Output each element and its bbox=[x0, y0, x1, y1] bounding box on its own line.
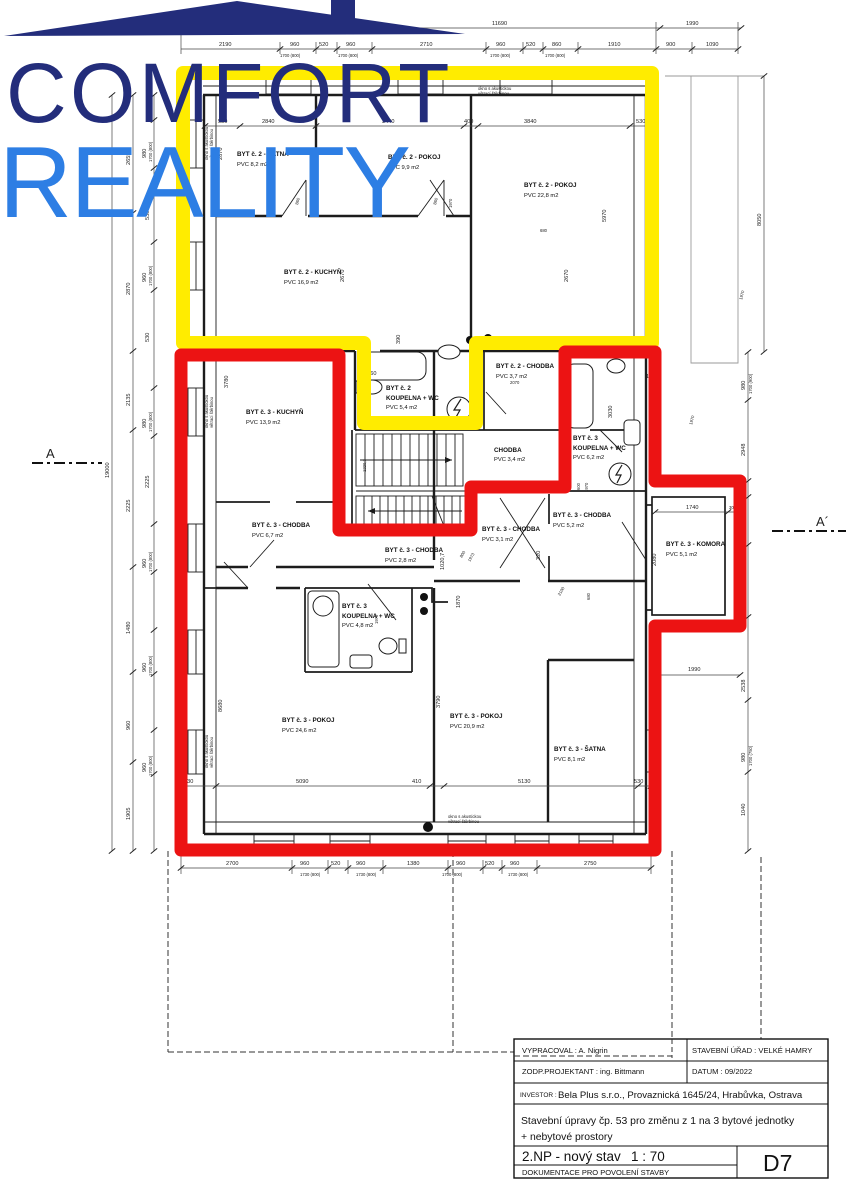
svg-text:PVC 13,9 m2: PVC 13,9 m2 bbox=[246, 420, 280, 426]
svg-text:1700 (900): 1700 (900) bbox=[748, 373, 753, 394]
svg-text:1220,7: 1220,7 bbox=[362, 459, 367, 472]
svg-text:1700 (800): 1700 (800) bbox=[148, 655, 153, 676]
svg-text:DOKUMENTACE PRO POVOLENÍ STAVB: DOKUMENTACE PRO POVOLENÍ STAVBY bbox=[522, 1168, 669, 1177]
svg-text:960: 960 bbox=[510, 861, 519, 867]
svg-text:BYT č. 2 - CHODBA: BYT č. 2 - CHODBA bbox=[496, 363, 555, 370]
svg-text:530: 530 bbox=[636, 119, 645, 125]
svg-text:PVC 5,2 m2: PVC 5,2 m2 bbox=[553, 523, 584, 529]
svg-text:11690: 11690 bbox=[492, 21, 507, 27]
svg-text:1870: 1870 bbox=[456, 596, 462, 608]
svg-text:1990: 1990 bbox=[688, 667, 700, 673]
svg-text:520: 520 bbox=[526, 42, 535, 48]
svg-text:BYT č. 3 - CHODBA: BYT č. 3 - CHODBA bbox=[553, 512, 612, 519]
svg-text:BYT č. 3 - POKOJ: BYT č. 3 - POKOJ bbox=[282, 717, 335, 724]
svg-text:1040: 1040 bbox=[741, 804, 747, 816]
svg-text:2948: 2948 bbox=[741, 444, 747, 456]
svg-text:900: 900 bbox=[666, 42, 675, 48]
svg-text:8050: 8050 bbox=[757, 214, 763, 226]
svg-text:INVESTOR :: INVESTOR : bbox=[520, 1092, 557, 1099]
svg-text:1700 (800): 1700 (800) bbox=[148, 551, 153, 572]
svg-text:2135: 2135 bbox=[126, 394, 132, 406]
svg-text:1730 (800): 1730 (800) bbox=[356, 872, 377, 877]
svg-text:D7: D7 bbox=[763, 1150, 792, 1176]
svg-text:1700 (800): 1700 (800) bbox=[545, 53, 566, 58]
svg-text:BYT č. 3: BYT č. 3 bbox=[342, 603, 367, 610]
svg-text:600: 600 bbox=[576, 482, 581, 490]
svg-text:3840: 3840 bbox=[524, 119, 536, 125]
svg-text:1020,7: 1020,7 bbox=[440, 553, 446, 570]
svg-text:2670: 2670 bbox=[340, 270, 346, 282]
svg-text:980: 980 bbox=[741, 381, 747, 390]
svg-text:Bela Plus s.r.o., Provaznická: Bela Plus s.r.o., Provaznická 1645/24, H… bbox=[558, 1090, 803, 1101]
svg-text:960: 960 bbox=[356, 861, 365, 867]
svg-text:2750: 2750 bbox=[584, 861, 596, 867]
svg-text:BYT č. 3 - POKOJ: BYT č. 3 - POKOJ bbox=[450, 713, 503, 720]
svg-text:větrací štěrbinou: větrací štěrbinou bbox=[209, 396, 214, 428]
svg-text:PVC 3,1 m2: PVC 3,1 m2 bbox=[482, 537, 513, 543]
svg-text:BYT č. 3 - KOMORA: BYT č. 3 - KOMORA bbox=[666, 541, 726, 548]
svg-text:větrací štěrbinou: větrací štěrbinou bbox=[478, 91, 510, 96]
svg-text:A´: A´ bbox=[816, 514, 829, 529]
svg-text:PVC 6,2 m2: PVC 6,2 m2 bbox=[573, 455, 604, 461]
svg-text:2870: 2870 bbox=[126, 283, 132, 295]
svg-text:PVC 8,1 m2: PVC 8,1 m2 bbox=[554, 757, 585, 763]
svg-text:3030: 3030 bbox=[608, 406, 614, 418]
svg-text:PVC 22,8 m2: PVC 22,8 m2 bbox=[524, 193, 558, 199]
svg-text:1905: 1905 bbox=[126, 808, 132, 820]
svg-text:860: 860 bbox=[552, 42, 561, 48]
svg-text:530: 530 bbox=[634, 779, 643, 785]
svg-text:PVC 24,6 m2: PVC 24,6 m2 bbox=[282, 728, 316, 734]
svg-text:STAVEBNÍ ÚŘAD : VELKÉ HAMRY: STAVEBNÍ ÚŘAD : VELKÉ HAMRY bbox=[692, 1046, 812, 1055]
svg-text:VYPRACOVAL : A. Nigrin: VYPRACOVAL : A. Nigrin bbox=[522, 1046, 608, 1055]
svg-text:BYT č. 2 - POKOJ: BYT č. 2 - POKOJ bbox=[524, 182, 577, 189]
svg-text:390: 390 bbox=[396, 335, 402, 344]
svg-text:2700: 2700 bbox=[226, 861, 238, 867]
svg-text:PVC 2,8 m2: PVC 2,8 m2 bbox=[385, 558, 416, 564]
svg-text:PVC 5,1 m2: PVC 5,1 m2 bbox=[666, 552, 697, 558]
svg-text:680: 680 bbox=[540, 228, 548, 233]
svg-text:1700 (800): 1700 (800) bbox=[148, 755, 153, 776]
svg-text:+ nebytové prostory: + nebytové prostory bbox=[521, 1132, 613, 1143]
svg-text:1 : 70: 1 : 70 bbox=[631, 1149, 665, 1164]
svg-text:BYT č. 3 - KUCHYŇ: BYT č. 3 - KUCHYŇ bbox=[246, 407, 304, 416]
svg-text:320: 320 bbox=[536, 551, 542, 560]
svg-text:ZODP.PROJEKTANT : ing. Bittman: ZODP.PROJEKTANT : ing. Bittmann bbox=[522, 1067, 644, 1076]
svg-text:větrací štěrbinou: větrací štěrbinou bbox=[448, 819, 480, 824]
svg-text:520: 520 bbox=[331, 861, 340, 867]
svg-text:2225: 2225 bbox=[145, 476, 151, 488]
svg-text:1380: 1380 bbox=[407, 861, 419, 867]
svg-text:1990: 1990 bbox=[686, 21, 698, 27]
svg-text:8680: 8680 bbox=[218, 700, 224, 712]
svg-text:1480: 1480 bbox=[126, 622, 132, 634]
svg-text:1910: 1910 bbox=[608, 42, 620, 48]
svg-text:2080: 2080 bbox=[652, 554, 658, 566]
svg-text:1700 (800): 1700 (800) bbox=[442, 872, 463, 877]
svg-text:1740: 1740 bbox=[686, 505, 698, 511]
svg-text:530: 530 bbox=[145, 333, 151, 342]
svg-text:PVC 6,7 m2: PVC 6,7 m2 bbox=[252, 533, 283, 539]
svg-text:1700 (800): 1700 (800) bbox=[148, 265, 153, 286]
svg-text:A: A bbox=[46, 446, 55, 461]
svg-text:3780: 3780 bbox=[224, 376, 230, 388]
svg-text:Stavební úpravy čp. 53 pro změ: Stavební úpravy čp. 53 pro změnu z 1 na … bbox=[521, 1116, 795, 1127]
svg-text:2538: 2538 bbox=[741, 680, 747, 692]
svg-text:COMFORT: COMFORT bbox=[6, 46, 453, 140]
svg-text:1970: 1970 bbox=[584, 482, 589, 492]
svg-text:1700 (800): 1700 (800) bbox=[490, 53, 511, 58]
svg-text:400: 400 bbox=[464, 119, 473, 125]
svg-text:2070: 2070 bbox=[510, 380, 520, 385]
svg-text:1700 (800): 1700 (800) bbox=[148, 411, 153, 432]
svg-text:410: 410 bbox=[412, 779, 421, 785]
svg-text:960: 960 bbox=[456, 861, 465, 867]
svg-text:BYT č. 3 - CHODBA: BYT č. 3 - CHODBA bbox=[385, 547, 444, 554]
svg-text:KOUPELNA + WC: KOUPELNA + WC bbox=[573, 445, 626, 452]
svg-text:19000: 19000 bbox=[105, 462, 111, 478]
svg-text:PVC 16,9 m2: PVC 16,9 m2 bbox=[284, 280, 318, 286]
svg-text:KOUPELNA + WC: KOUPELNA + WC bbox=[386, 395, 439, 402]
svg-text:5970: 5970 bbox=[602, 210, 608, 222]
svg-text:1970: 1970 bbox=[448, 198, 453, 208]
svg-text:1730 (800): 1730 (800) bbox=[300, 872, 321, 877]
svg-text:2.NP - nový stav: 2.NP - nový stav bbox=[522, 1149, 621, 1164]
svg-text:5130: 5130 bbox=[518, 779, 530, 785]
svg-text:PVC 4,8 m2: PVC 4,8 m2 bbox=[342, 623, 373, 629]
svg-text:520: 520 bbox=[485, 861, 494, 867]
svg-text:BYT č. 3 - ŠATNA: BYT č. 3 - ŠATNA bbox=[554, 744, 606, 753]
svg-text:1090: 1090 bbox=[706, 42, 718, 48]
svg-text:1700 (750): 1700 (750) bbox=[748, 745, 753, 766]
svg-text:960: 960 bbox=[126, 721, 132, 730]
svg-text:3790: 3790 bbox=[436, 696, 442, 708]
svg-text:větrací štěrbinou: větrací štěrbinou bbox=[209, 736, 214, 768]
svg-text:680: 680 bbox=[586, 592, 591, 600]
svg-text:PVC 20,9 m2: PVC 20,9 m2 bbox=[450, 724, 484, 730]
svg-text:2225: 2225 bbox=[126, 500, 132, 512]
svg-text:BYT č. 2 - KUCHYŇ: BYT č. 2 - KUCHYŇ bbox=[284, 267, 342, 276]
svg-text:BYT č. 3: BYT č. 3 bbox=[573, 435, 598, 442]
svg-text:PVC 3,4 m2: PVC 3,4 m2 bbox=[494, 457, 525, 463]
svg-text:1730 (800): 1730 (800) bbox=[508, 872, 529, 877]
svg-text:5090: 5090 bbox=[296, 779, 308, 785]
svg-text:960: 960 bbox=[300, 861, 309, 867]
svg-text:980: 980 bbox=[741, 753, 747, 762]
svg-text:CHODBA: CHODBA bbox=[494, 447, 522, 454]
svg-text:PVC 5,4 m2: PVC 5,4 m2 bbox=[386, 405, 417, 411]
svg-text:BYT č. 3 - CHODBA: BYT č. 3 - CHODBA bbox=[482, 526, 541, 533]
svg-text:BYT č. 2: BYT č. 2 bbox=[386, 385, 411, 392]
svg-text:REALITY: REALITY bbox=[0, 127, 410, 239]
svg-text:2670: 2670 bbox=[564, 270, 570, 282]
svg-text:KOUPELNA + WC: KOUPELNA + WC bbox=[342, 613, 395, 620]
svg-text:960: 960 bbox=[496, 42, 505, 48]
svg-text:DATUM : 09/2022: DATUM : 09/2022 bbox=[692, 1067, 752, 1076]
svg-text:BYT č. 3 - CHODBA: BYT č. 3 - CHODBA bbox=[252, 522, 311, 529]
